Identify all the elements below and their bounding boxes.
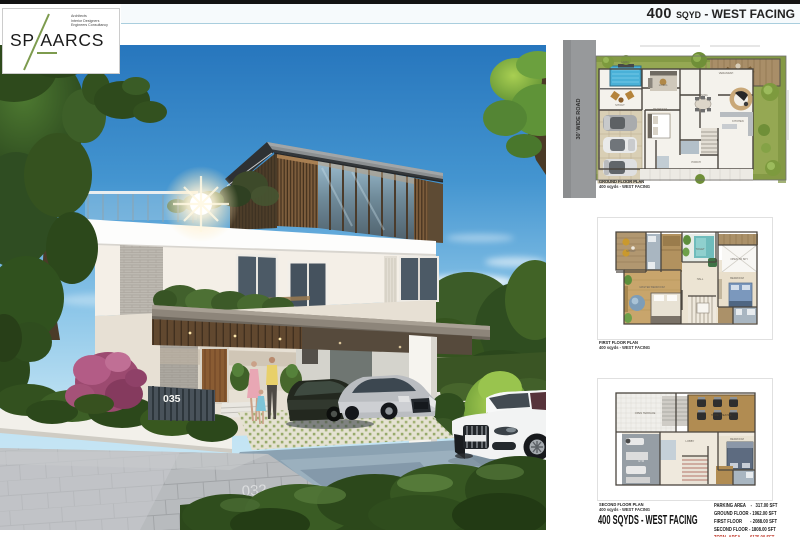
svg-text:LOBBY: LOBBY	[686, 439, 695, 443]
svg-text:BEDROOM: BEDROOM	[730, 276, 744, 280]
svg-text:PORCH: PORCH	[691, 160, 701, 164]
svg-text:SITOUT: SITOUT	[626, 249, 636, 253]
svg-text:LAWN: LAWN	[621, 60, 629, 64]
svg-text:TOILET: TOILET	[695, 247, 705, 251]
svg-text:DINING: DINING	[699, 93, 708, 97]
svg-text:OPEN TERRACE: OPEN TERRACE	[635, 411, 656, 415]
svg-text:KITCHEN: KITCHEN	[732, 119, 744, 123]
svg-text:GYM: GYM	[638, 459, 644, 463]
svg-text:LIVING: LIVING	[659, 83, 668, 87]
svg-text:BEDROOM: BEDROOM	[730, 437, 744, 441]
svg-text:30' WIDE ROAD: 30' WIDE ROAD	[576, 98, 582, 139]
svg-text:HOME THEATRE: HOME THEATRE	[711, 413, 732, 417]
svg-text:OPEN TO SKY: OPEN TO SKY	[730, 257, 748, 261]
svg-text:BEDROOM: BEDROOM	[653, 107, 667, 111]
svg-text:SITOUT: SITOUT	[615, 103, 625, 107]
svg-text:HALL: HALL	[697, 277, 704, 281]
svg-text:035: 035	[163, 393, 181, 405]
svg-text:VERANDAH: VERANDAH	[719, 71, 734, 75]
svg-text:MASTER BEDROOM: MASTER BEDROOM	[639, 285, 664, 289]
